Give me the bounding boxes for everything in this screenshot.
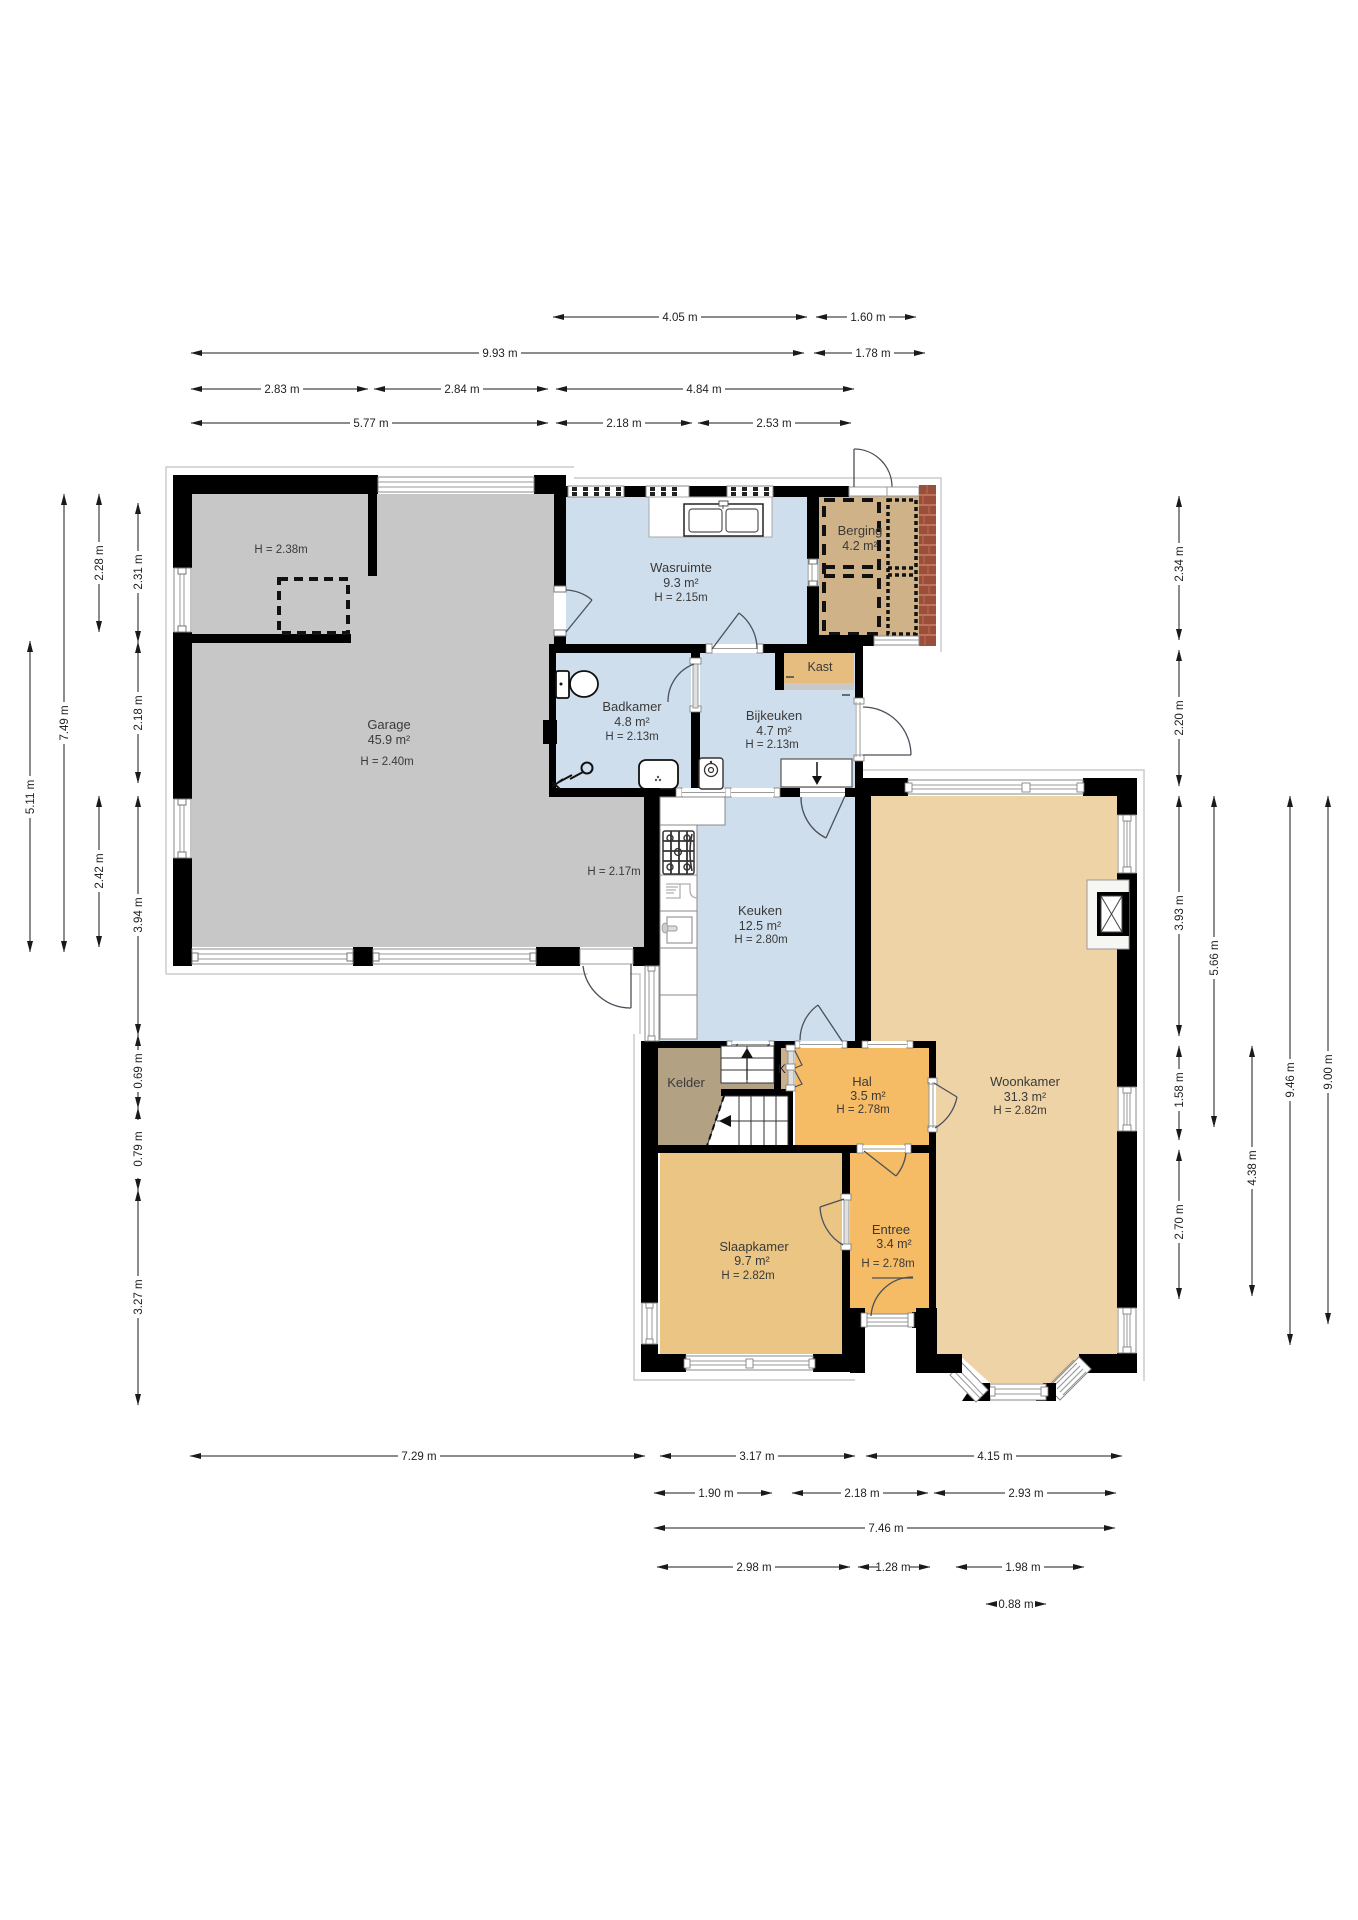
svg-text:3.5 m²: 3.5 m² [850,1089,885,1103]
svg-text:1.90 m: 1.90 m [698,1488,733,1500]
svg-text:7.29 m: 7.29 m [401,1451,436,1463]
svg-text:12.5 m²: 12.5 m² [739,919,781,933]
svg-text:H = 2.38m: H = 2.38m [254,544,307,556]
svg-text:4.8 m²: 4.8 m² [614,715,649,729]
svg-text:H = 2.80m: H = 2.80m [734,934,787,946]
svg-text:5.11 m: 5.11 m [25,780,37,814]
svg-text:2.18 m: 2.18 m [606,418,641,430]
svg-text:4.2 m²: 4.2 m² [842,539,877,553]
svg-text:4.15 m: 4.15 m [977,1451,1012,1463]
svg-text:1.60 m: 1.60 m [850,312,885,324]
svg-text:2.34 m: 2.34 m [1174,546,1186,581]
svg-text:H = 2.17m: H = 2.17m [587,866,640,878]
svg-text:Kast: Kast [807,660,833,674]
svg-text:Berging: Berging [838,523,883,538]
svg-text:Bijkeuken: Bijkeuken [746,708,802,723]
svg-text:0.88 m: 0.88 m [998,1599,1033,1611]
svg-text:H = 2.78m: H = 2.78m [861,1258,914,1270]
svg-text:H = 2.82m: H = 2.82m [993,1105,1046,1117]
svg-text:Keuken: Keuken [738,903,782,918]
svg-text:31.3 m²: 31.3 m² [1004,1090,1046,1104]
svg-text:2.28 m: 2.28 m [94,545,106,580]
svg-text:K: K [778,1064,786,1076]
svg-text:2.18 m: 2.18 m [844,1488,879,1500]
svg-text:45.9 m²: 45.9 m² [368,733,410,747]
svg-text:2.18 m: 2.18 m [133,695,145,730]
svg-text:9.3 m²: 9.3 m² [663,576,698,590]
svg-text:Hal: Hal [852,1074,872,1089]
svg-text:2.84 m: 2.84 m [444,384,479,396]
svg-text:2.20 m: 2.20 m [1174,700,1186,735]
svg-text:Woonkamer: Woonkamer [990,1074,1061,1089]
svg-text:9.7 m²: 9.7 m² [734,1254,769,1268]
svg-text:3.93 m: 3.93 m [1174,895,1186,930]
svg-text:H = 2.13m: H = 2.13m [605,731,658,743]
svg-text:2.42 m: 2.42 m [94,853,106,888]
svg-text:Entree: Entree [872,1222,910,1237]
svg-text:5.77 m: 5.77 m [353,418,388,430]
svg-text:H = 2.82m: H = 2.82m [721,1270,774,1282]
svg-text:2.70 m: 2.70 m [1174,1204,1186,1239]
svg-text:2.53 m: 2.53 m [756,418,791,430]
svg-text:0.79 m: 0.79 m [133,1131,145,1166]
svg-text:Slaapkamer: Slaapkamer [719,1239,789,1254]
svg-text:9.46 m: 9.46 m [1285,1062,1297,1097]
svg-text:2.31 m: 2.31 m [133,554,145,589]
svg-text:7.46 m: 7.46 m [868,1523,903,1535]
svg-text:1.98 m: 1.98 m [1005,1562,1040,1574]
svg-text:H = 2.40m: H = 2.40m [360,756,413,768]
svg-text:Kelder: Kelder [667,1075,705,1090]
svg-text:9.00 m: 9.00 m [1323,1054,1335,1089]
svg-text:4.38 m: 4.38 m [1247,1150,1259,1185]
svg-text:H = 2.78m: H = 2.78m [836,1104,889,1116]
svg-text:2.93 m: 2.93 m [1008,1488,1043,1500]
svg-text:4.7 m²: 4.7 m² [756,724,791,738]
svg-text:Wasruimte: Wasruimte [650,560,712,575]
svg-text:H = 2.13m: H = 2.13m [745,739,798,751]
svg-text:2.83 m: 2.83 m [264,384,299,396]
svg-text:H = 2.15m: H = 2.15m [654,592,707,604]
svg-text:1.58 m: 1.58 m [1174,1072,1186,1107]
svg-text:Badkamer: Badkamer [602,699,662,714]
svg-text:0.69 m: 0.69 m [133,1053,145,1088]
svg-text:2.98 m: 2.98 m [736,1562,771,1574]
svg-text:1.78 m: 1.78 m [855,348,890,360]
svg-text:3.94 m: 3.94 m [133,897,145,932]
svg-text:5.66 m: 5.66 m [1209,940,1221,975]
svg-text:3.27 m: 3.27 m [133,1279,145,1314]
svg-text:7.49 m: 7.49 m [59,705,71,740]
svg-text:3.17 m: 3.17 m [739,1451,774,1463]
svg-text:4.84 m: 4.84 m [686,384,721,396]
svg-text:3.4 m²: 3.4 m² [876,1237,911,1251]
svg-text:1.28 m: 1.28 m [875,1562,910,1574]
svg-text:Garage: Garage [367,717,410,732]
svg-text:9.93 m: 9.93 m [482,348,517,360]
svg-text:4.05 m: 4.05 m [662,312,697,324]
